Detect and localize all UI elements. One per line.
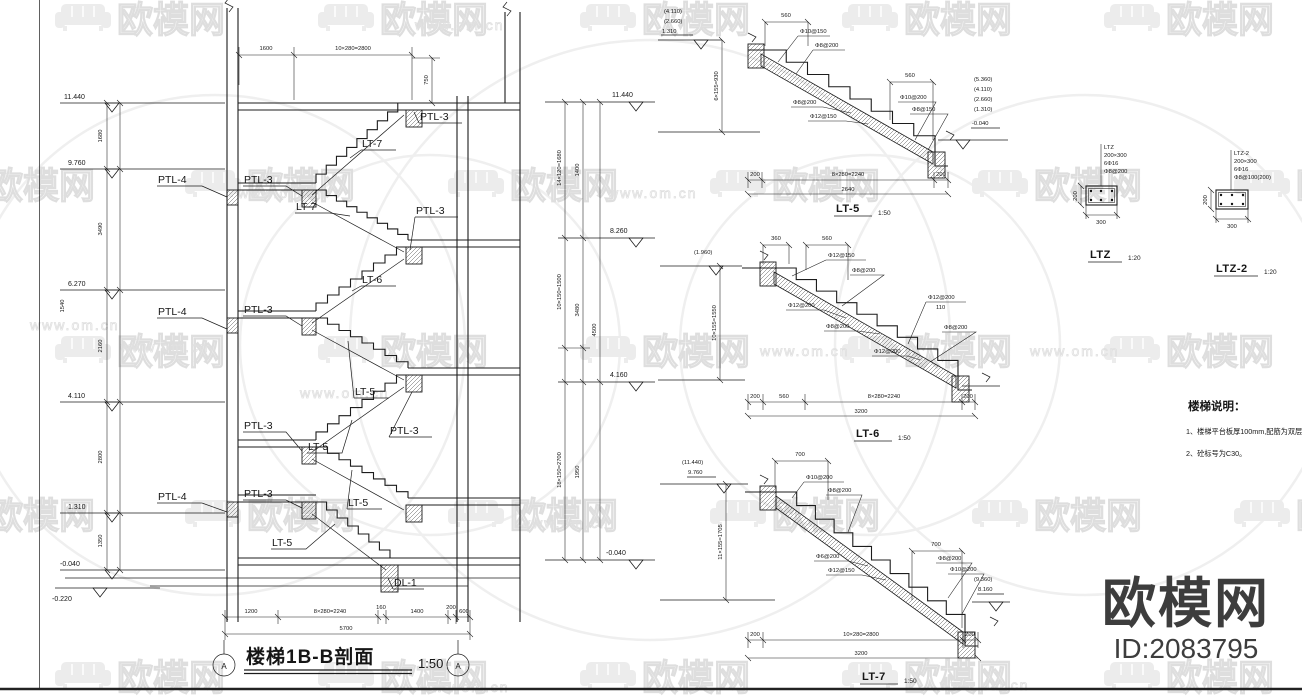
label-lt7: LT-7 <box>362 138 382 150</box>
sofa-watermark-icon <box>710 500 766 527</box>
elevation-label: -0.040 <box>606 550 626 557</box>
dim-label: 3200 <box>855 409 868 415</box>
section-ltz2: LTZ-2 200×300 6Φ16 Φ8@100(200) 300 200 L… <box>1203 150 1277 276</box>
stair-slab <box>761 54 933 164</box>
dim-label: 3480 <box>575 304 581 317</box>
sofa-watermark-icon <box>842 4 898 31</box>
rebar-label: Φ8@200 <box>826 324 849 330</box>
spec-label: LTZ-2 <box>1234 151 1249 157</box>
landing-beam <box>760 486 776 510</box>
elevation-label: 9.760 <box>68 160 86 167</box>
elevation-label: (1.310) <box>974 107 992 113</box>
label-lt6: LT-6 <box>362 274 382 286</box>
beam-ptl3 <box>406 505 422 522</box>
dim-label: 5700 <box>340 626 353 632</box>
axis-letter: A <box>221 662 227 671</box>
watermark-brand-text: 欧模网 <box>117 657 225 698</box>
sofa-watermark-icon <box>972 170 1028 197</box>
rebar-label: Φ8@200 <box>944 325 967 331</box>
watermark-brand-text: 欧模网 <box>1166 331 1274 372</box>
detail-title: LTZ <box>1090 249 1111 261</box>
spec-label: Φ8@100(200) <box>1234 175 1271 181</box>
rebar-label: Φ8@150 <box>912 107 935 113</box>
sofa-watermark-icon <box>448 170 504 197</box>
watermark-brand-text: 欧模网 <box>117 0 225 40</box>
label-dl1: DL-1 <box>394 577 417 589</box>
label-lt5: LT-5 <box>272 537 292 549</box>
rebar-label: Φ6@200 <box>816 554 839 560</box>
watermark-brand-text: 欧模网 <box>380 331 488 372</box>
label-ptl3: PTL-3 <box>244 420 273 432</box>
watermark-brand-text: 欧模网 <box>1034 495 1142 536</box>
elevation-label: 1.310 <box>662 29 677 35</box>
stair-flight <box>316 447 408 498</box>
dim-label: 200 <box>750 394 760 400</box>
beam-ptl3 <box>302 502 316 519</box>
spec-label: 6Φ16 <box>1234 167 1248 173</box>
beam-ptl3 <box>406 247 422 264</box>
sofa-watermark-icon <box>318 4 374 31</box>
watermark-brand-text: 欧模网 <box>904 0 1012 40</box>
watermark-site-text: www.om.cn <box>414 17 505 33</box>
elevation-label: (5.360) <box>974 77 992 83</box>
spec-label: 200×300 <box>1234 159 1257 165</box>
watermark-site-text: www.om.cn <box>119 339 210 355</box>
elevation-label: 4.110 <box>68 393 85 400</box>
section-title-block: A A 楼梯1B-B剖面 1:50 <box>213 640 469 676</box>
label-lt7: LT-7 <box>296 201 316 213</box>
dim-label: 560 <box>779 394 789 400</box>
elevation-label: (11.440) <box>682 460 703 466</box>
watermark-site-text: www.om.cn <box>29 317 120 333</box>
sofa-watermark-icon <box>1104 4 1160 31</box>
watermark-site-text: www.om.cn <box>299 385 390 401</box>
dim-label: 300 <box>1227 224 1237 230</box>
dim-label: 2800 <box>98 451 104 464</box>
axis-letter: A <box>455 662 461 671</box>
rebar-label: Φ12@150 <box>810 114 837 120</box>
spec-label: LTZ <box>1104 145 1114 151</box>
elevation-label: 1.310 <box>68 504 86 511</box>
watermark-brand-text: 欧模网 <box>247 495 355 536</box>
elevation-label: (4.110) <box>974 87 992 93</box>
watermark-site-text: www.om.cn <box>419 679 510 695</box>
rebar-label: Φ10@150 <box>800 29 827 35</box>
dim-label: 1600 <box>260 46 273 52</box>
sofa-watermark-icon <box>580 336 636 363</box>
rebar-label: Φ8@200 <box>852 268 875 274</box>
watermark-brand-text: 欧模网 <box>642 331 750 372</box>
label-lt5: LT-5 <box>355 386 375 398</box>
elevation-label: (9.360) <box>974 577 992 583</box>
label-ptl4: PTL-4 <box>158 491 187 503</box>
notes-title: 楼梯说明： <box>1188 399 1246 413</box>
logo-id: ID:2083795 <box>1114 633 1259 664</box>
dim-label: 18×150=2700 <box>557 452 563 488</box>
rebar-label: Φ10@200 <box>900 95 927 101</box>
notes-item: 2、砼标号为C30。 <box>1186 449 1246 458</box>
section-title: 楼梯1B-B剖面 <box>246 645 374 668</box>
dim-label: 1950 <box>575 466 581 479</box>
dim-label: 750 <box>424 75 430 85</box>
elevation-label: 4.160 <box>610 372 628 379</box>
beam-ptl4 <box>227 190 238 205</box>
label-ptl4: PTL-4 <box>158 306 187 318</box>
label-ptl3: PTL-3 <box>390 425 419 437</box>
section-scale: 1:50 <box>418 656 443 671</box>
rebar-label: Φ12@200 <box>928 295 955 301</box>
dim-label: 8×280=2240 <box>832 172 865 178</box>
dims-bottom: 1200 8×280=2240 160 1400 200 600 5700 <box>222 605 473 640</box>
dim-label: 200 <box>963 394 973 400</box>
rebar-label: Φ12@200 <box>874 349 901 355</box>
detail-scale: 1:50 <box>878 210 891 217</box>
dim-label: 1200 <box>245 609 258 615</box>
detail-title: LTZ-2 <box>1216 263 1248 275</box>
dim-label: 1400 <box>411 609 424 615</box>
dim-label: 2640 <box>842 187 855 193</box>
label-ptl3: PTL-3 <box>244 304 273 316</box>
dim-label: 3200 <box>855 651 868 657</box>
dim-label: 10×280=2800 <box>843 632 879 638</box>
watermark-brand-text: 欧模网 <box>0 165 95 206</box>
spec-label: 6Φ16 <box>1104 161 1118 167</box>
watermark-brand-text: 欧模网 <box>1166 0 1274 40</box>
dim-label: 600 <box>459 609 469 615</box>
rebar-label: Φ8@200 <box>793 100 816 106</box>
beam-ptl4 <box>227 502 238 517</box>
spec-label: Φ8@200 <box>1104 169 1127 175</box>
dim-label: 360 <box>771 236 781 242</box>
dim-label: 200 <box>1203 195 1209 205</box>
sofa-watermark-icon <box>972 500 1028 527</box>
label-ptl3: PTL-3 <box>244 488 273 500</box>
dim-label: 1680 <box>98 130 104 143</box>
watermark-brand-text: 欧模网 <box>510 165 618 206</box>
spec-label: 200×300 <box>1104 153 1127 159</box>
rebar-label: Φ12@150 <box>828 568 855 574</box>
beam-ptl4 <box>227 318 238 333</box>
label-lt5: LT-5 <box>308 441 328 453</box>
label-ptl4: PTL-4 <box>158 174 187 186</box>
elevation-label: 11.440 <box>64 94 85 101</box>
watermark-brand-text: 欧模网 <box>1296 165 1302 206</box>
dim-label: 11×155=1705 <box>718 524 724 559</box>
dim-label: 560 <box>822 236 832 242</box>
logo-brand: 欧模网 <box>1102 574 1270 634</box>
elevation-label: -0.220 <box>52 596 72 603</box>
sofa-watermark-icon <box>1104 662 1160 689</box>
elevation-label: (2.660) <box>664 19 682 25</box>
dim-label: 6×155=930 <box>714 71 720 100</box>
label-ptl3: PTL-3 <box>244 174 273 186</box>
sofa-watermark-icon <box>448 500 504 527</box>
elevation-label: (4.110) <box>664 9 682 15</box>
dim-label: 3490 <box>98 223 104 236</box>
sofa-watermark-icon <box>580 4 636 31</box>
elevation-label: (2.660) <box>974 97 992 103</box>
dim-label: 200 <box>936 172 946 178</box>
dims-top: 1600 10×280=2800 750 <box>236 46 440 106</box>
dim-label: 8×280=2240 <box>868 394 901 400</box>
elevation-label: 8.160 <box>978 587 993 593</box>
detail-scale: 1:20 <box>1264 269 1277 276</box>
label-ptl3: PTL-3 <box>420 111 449 123</box>
dim-label: 1350 <box>98 535 104 548</box>
watermark-site-text: www.om.cn <box>1029 343 1120 359</box>
detail-scale: 1:50 <box>898 435 911 442</box>
elevation-label: -0.040 <box>972 121 988 127</box>
watermark-brand-text: 欧模网 <box>642 657 750 698</box>
elevation-label: 8.260 <box>610 228 628 235</box>
dim-label: 8×280=2240 <box>314 609 347 615</box>
dim-label: 10×150=1500 <box>557 274 563 310</box>
dim-label: 200 <box>750 172 760 178</box>
sofa-watermark-icon <box>55 662 111 689</box>
dim-label: 560 <box>781 13 791 19</box>
dim-label: 700 <box>931 542 941 548</box>
dim-label: 200 <box>1073 191 1079 201</box>
label-ptl3: PTL-3 <box>416 205 445 217</box>
detail-scale: 1:20 <box>1128 255 1141 262</box>
watermark-site-text: www.om.cn <box>939 677 1030 693</box>
rebar-label: Φ10@200 <box>950 567 977 573</box>
elevation-label: 6.270 <box>68 281 86 288</box>
dim-label: 200 <box>750 632 760 638</box>
dim-label: 1400 <box>575 164 581 177</box>
dim-label: 300 <box>1096 220 1106 226</box>
stair-slab <box>774 272 956 388</box>
dim-label: 160 <box>376 605 386 611</box>
sofa-watermark-icon <box>580 662 636 689</box>
rebar-label: Φ8@200 <box>938 556 961 562</box>
elevation-label: 9.760 <box>688 470 703 476</box>
rebar-label: Φ8@200 <box>815 43 838 49</box>
dim-label: 200 <box>965 632 975 638</box>
watermark-brand-text: 欧模网 <box>642 0 750 40</box>
detail-lt7: (11.440) 9.760 11×155=1705 700 Φ10@200 Φ… <box>660 452 1010 685</box>
dim-label: 10×155=1550 <box>712 305 718 341</box>
watermark-brand-text: 欧模网 <box>1296 495 1302 536</box>
detail-title: LT-6 <box>856 428 880 440</box>
beam-ptl3 <box>406 375 422 392</box>
rebar-label: Φ8@200 <box>828 488 851 494</box>
dim-label: 700 <box>795 452 805 458</box>
dim-label: 1540 <box>60 300 66 313</box>
watermark-site-text: www.om.cn <box>519 515 610 531</box>
label-lt5: LT-5 <box>348 497 368 509</box>
stair-notes: 楼梯说明： 1、楼梯平台板厚100mm,配筋为双层双向。 2、砼标号为C30。 <box>1186 399 1302 458</box>
elevation-label: 11.440 <box>612 92 633 99</box>
dim-label: 14×120=1680 <box>557 150 563 186</box>
detail-title: LT-5 <box>836 203 860 215</box>
watermark-brand-text: 欧模网 <box>0 495 95 536</box>
watermark-site-text: www.om.cn <box>759 343 850 359</box>
rebar-label: Φ10@200 <box>806 475 833 481</box>
rebar-label: Φ12@200 <box>788 303 815 309</box>
rebar-label: 110 <box>936 305 945 311</box>
sofa-watermark-icon <box>55 4 111 31</box>
dim-label: 200 <box>446 605 456 611</box>
elevation-label: -0.040 <box>60 561 80 568</box>
site-logo: 欧模网 ID:2083795 <box>1102 574 1270 664</box>
rebar-label: Φ12@150 <box>828 253 855 259</box>
dim-label: 10×280=2800 <box>335 46 371 52</box>
detail-scale: 1:50 <box>904 678 917 685</box>
dim-label: 2160 <box>98 340 104 353</box>
watermark-site-text: www.om.cn <box>607 185 698 201</box>
dim-label: 560 <box>905 73 915 79</box>
detail-title: LT-7 <box>862 671 886 683</box>
beam-ptl3 <box>302 318 316 335</box>
drawing-canvas: 欧模网欧模网欧模网欧模网欧模网欧模网欧模网欧模网欧模网欧模网欧模网欧模网欧模网欧… <box>0 0 1302 698</box>
elevation-label: (1.960) <box>694 250 712 256</box>
dim-label: 4500 <box>592 324 598 337</box>
notes-item: 1、楼梯平台板厚100mm,配筋为双层双向。 <box>1186 427 1302 436</box>
